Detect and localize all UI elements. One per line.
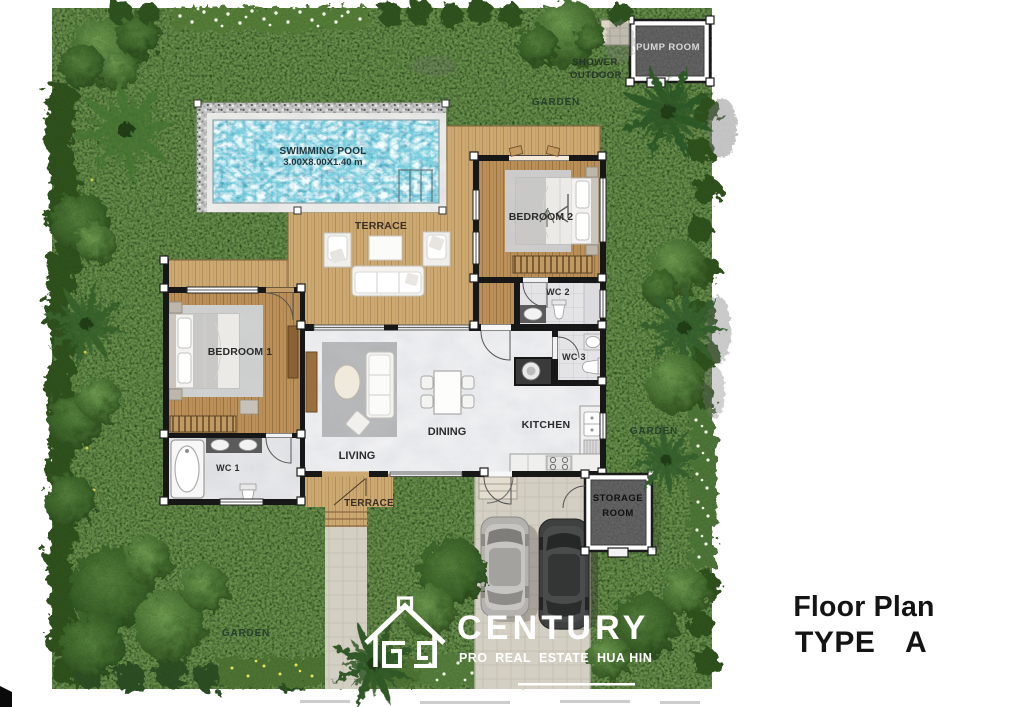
svg-text:A: A xyxy=(905,626,927,659)
svg-text:SHOWER: SHOWER xyxy=(572,57,618,68)
svg-text:TERRACE: TERRACE xyxy=(344,498,394,509)
svg-text:CENTURY: CENTURY xyxy=(457,609,649,647)
svg-text:BEDROOM 2: BEDROOM 2 xyxy=(509,211,574,223)
svg-text:KITCHEN: KITCHEN xyxy=(522,419,571,431)
svg-text:WC 3: WC 3 xyxy=(562,352,586,362)
svg-text:GARDEN: GARDEN xyxy=(630,426,678,437)
svg-text:WC 2: WC 2 xyxy=(546,287,570,297)
svg-text:BEDROOM 1: BEDROOM 1 xyxy=(208,346,273,358)
svg-text:ROOM: ROOM xyxy=(602,508,634,519)
svg-text:STORAGE: STORAGE xyxy=(593,493,643,504)
svg-text:PUMP ROOM: PUMP ROOM xyxy=(636,42,700,53)
svg-text:TYPE: TYPE xyxy=(795,626,875,659)
svg-text:TERRACE: TERRACE xyxy=(355,220,407,232)
svg-text:SWIMMING POOL: SWIMMING POOL xyxy=(279,146,366,157)
svg-text:WC 1: WC 1 xyxy=(216,463,240,473)
svg-text:OUTDOOR: OUTDOOR xyxy=(570,70,622,81)
svg-text:GARDEN: GARDEN xyxy=(222,628,270,639)
svg-text:LIVING: LIVING xyxy=(339,450,376,462)
svg-text:DINING: DINING xyxy=(428,426,467,438)
svg-text:Floor Plan: Floor Plan xyxy=(793,591,934,623)
svg-text:GARDEN: GARDEN xyxy=(532,97,580,108)
svg-text:PRO REAL ESTATE HUA HIN: PRO REAL ESTATE HUA HIN xyxy=(459,651,652,665)
svg-text:3.00X8.00X1.40 m: 3.00X8.00X1.40 m xyxy=(283,157,362,168)
